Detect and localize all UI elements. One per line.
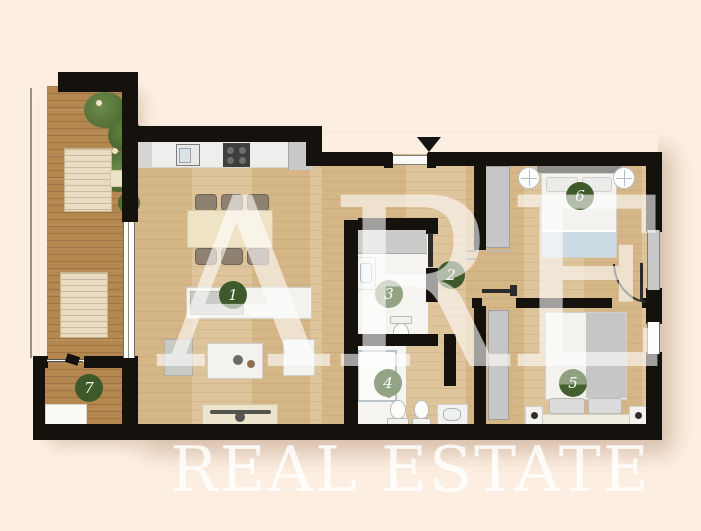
wall — [122, 72, 138, 222]
kitchen-cabinet — [138, 142, 152, 168]
room-number: 7 — [84, 379, 94, 397]
balcony-railing — [30, 88, 32, 358]
floor-plan-image: 1 2 3 4 5 6 7 ARE REAL ESTATE — [0, 0, 701, 531]
wall — [126, 126, 322, 142]
sun-lounger — [60, 272, 108, 338]
plant-flower — [112, 148, 118, 154]
brand-wordmark-watermark: REAL ESTATE — [158, 438, 663, 501]
sun-lounger — [64, 148, 112, 212]
plant-flower — [96, 100, 102, 106]
brand-monogram-watermark: ARE — [158, 168, 663, 403]
doormat — [45, 404, 87, 426]
room-marker-7: 7 — [75, 374, 103, 402]
wall — [58, 72, 128, 92]
window-mullion — [128, 222, 129, 358]
balcony-sliding-door — [123, 222, 135, 358]
wall — [33, 356, 48, 368]
